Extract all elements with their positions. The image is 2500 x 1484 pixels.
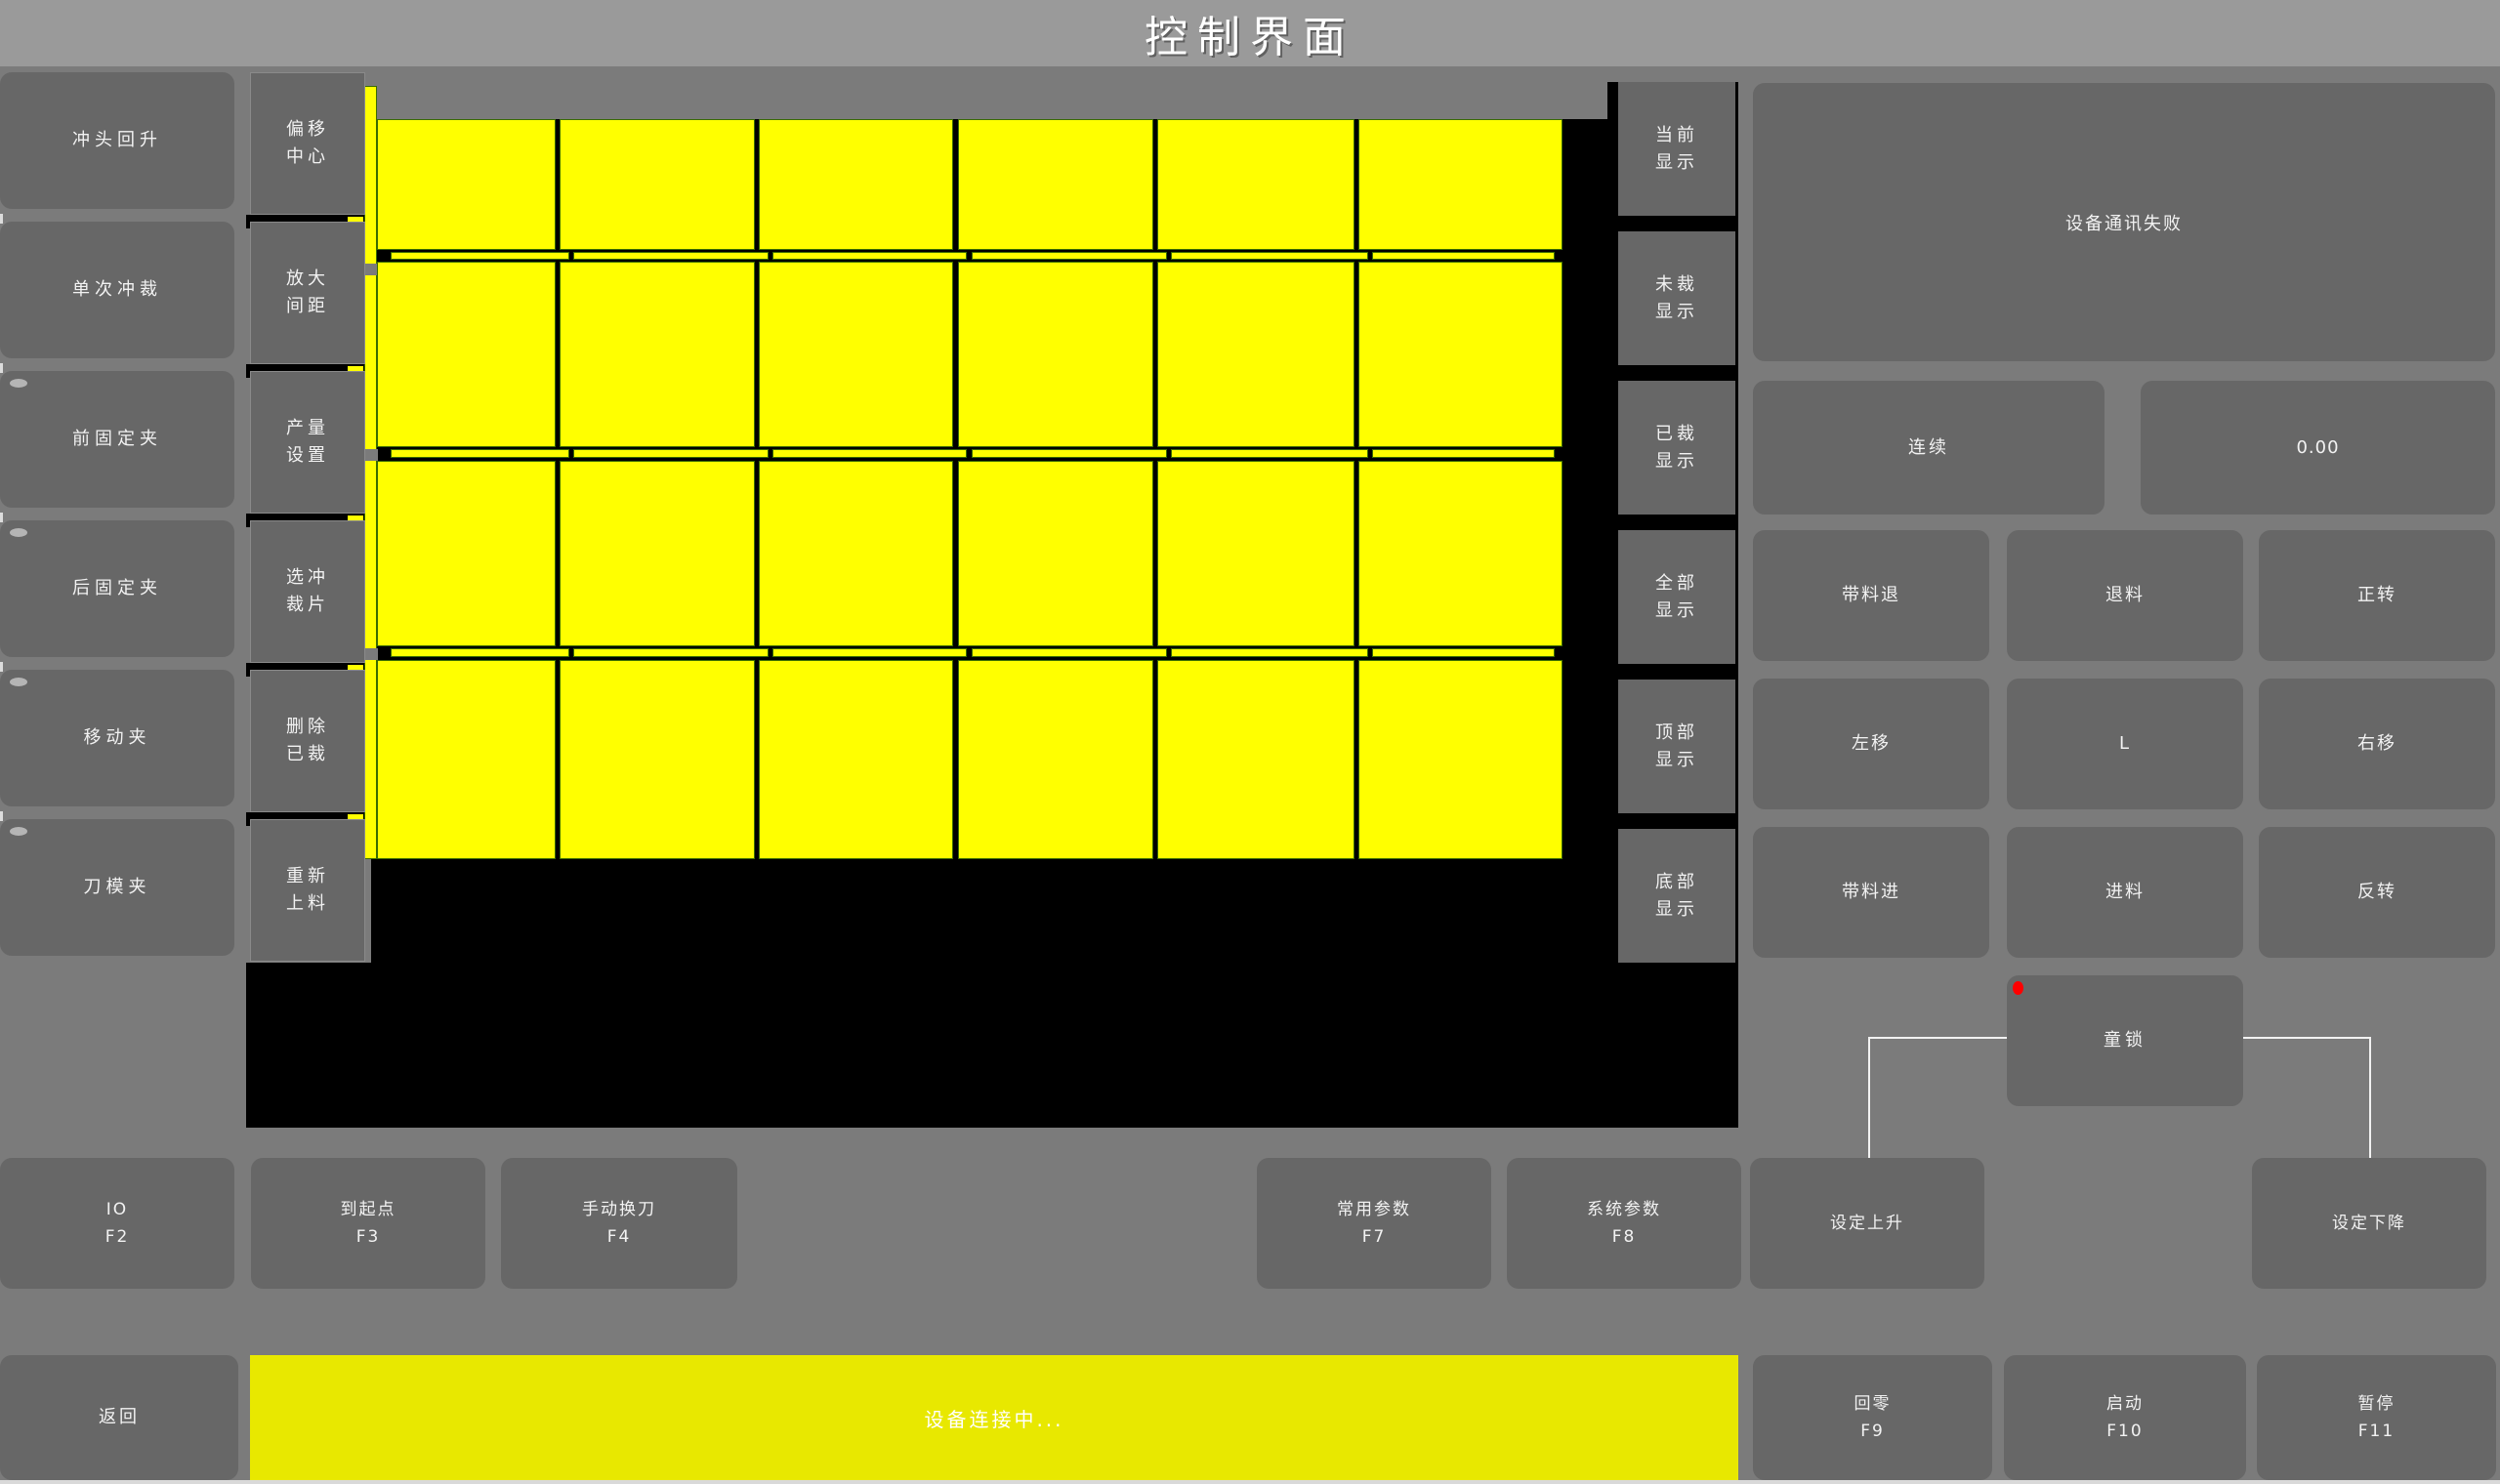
title-bar: 控制界面 <box>0 0 2500 66</box>
cut-piece[interactable] <box>560 461 755 646</box>
cut-piece[interactable] <box>560 119 755 250</box>
cut-strip-piece[interactable] <box>573 648 769 657</box>
button-show-current[interactable]: 当前 显示 <box>1618 82 1735 216</box>
button-die-clamp[interactable]: 刀模夹 <box>0 819 234 956</box>
cut-strip-piece[interactable] <box>772 252 967 260</box>
button-feed-in-with-material[interactable]: 带料进 <box>1753 827 1989 958</box>
cut-piece[interactable] <box>958 119 1153 250</box>
cut-piece[interactable] <box>759 262 953 447</box>
button-material-back[interactable]: 退料 <box>2007 530 2243 661</box>
cut-piece[interactable] <box>759 119 953 250</box>
cut-piece[interactable] <box>377 660 556 859</box>
cut-piece[interactable] <box>759 461 953 646</box>
button-show-all[interactable]: 全部 显示 <box>1618 530 1735 664</box>
button-home-f9[interactable]: 回零 F9 <box>1753 1355 1992 1480</box>
cut-strip-piece[interactable] <box>972 648 1167 657</box>
left-edge-tick <box>0 513 3 522</box>
button-output-settings[interactable]: 产量 设置 <box>250 371 365 514</box>
cut-piece[interactable] <box>1157 119 1354 250</box>
cut-strip-piece[interactable] <box>573 252 769 260</box>
cut-piece[interactable] <box>958 660 1153 859</box>
cut-strip-piece[interactable] <box>972 449 1167 458</box>
button-set-fall[interactable]: 设定下降 <box>2252 1158 2486 1289</box>
button-show-bottom[interactable]: 底部 显示 <box>1618 829 1735 963</box>
button-system-params-f8[interactable]: 系统参数 F8 <box>1507 1158 1741 1289</box>
clamp-indicator-light <box>10 678 27 686</box>
device-status-panel: 设备通讯失败 <box>1753 83 2495 361</box>
connection-status-bar: 设备连接中... <box>250 1355 1738 1480</box>
cut-piece[interactable] <box>377 262 556 447</box>
back-button[interactable]: 返回 <box>0 1355 238 1480</box>
cut-piece[interactable] <box>377 461 556 646</box>
button-l[interactable]: L <box>2007 679 2243 809</box>
lock-indicator-light <box>2013 981 2023 995</box>
button-select-pieces[interactable]: 选冲 裁片 <box>250 520 365 663</box>
left-edge-tick <box>0 363 3 373</box>
button-move-right[interactable]: 右移 <box>2259 679 2495 809</box>
clamp-indicator-light <box>10 827 27 836</box>
continuous-mode-button[interactable]: 连续 <box>1753 381 2104 515</box>
button-rotate-forward[interactable]: 正转 <box>2259 530 2495 661</box>
cut-piece[interactable] <box>1358 119 1562 250</box>
button-moving-clamp[interactable]: 移动夹 <box>0 670 234 806</box>
cut-piece[interactable] <box>1358 461 1562 646</box>
button-show-uncut[interactable]: 未裁 显示 <box>1618 231 1735 365</box>
lock-link-line-left <box>1868 1037 1870 1158</box>
button-punch-return[interactable]: 冲头回升 <box>0 72 234 209</box>
cut-piece[interactable] <box>1157 461 1354 646</box>
button-show-top[interactable]: 顶部 显示 <box>1618 680 1735 813</box>
cut-strip-piece[interactable] <box>1372 449 1555 458</box>
cut-strip-piece[interactable] <box>772 449 967 458</box>
cut-strip-piece[interactable] <box>972 252 1167 260</box>
cut-piece[interactable] <box>958 461 1153 646</box>
button-rear-clamp[interactable]: 后固定夹 <box>0 520 234 657</box>
button-rotate-reverse[interactable]: 反转 <box>2259 827 2495 958</box>
device-status-message: 设备通讯失败 <box>2065 210 2183 235</box>
canvas-bottom-left <box>246 963 371 1128</box>
material-edge-gap <box>363 648 378 660</box>
button-manual-tool-change-f4[interactable]: 手动换刀 F4 <box>501 1158 737 1289</box>
bottom-edge-line <box>0 1480 2500 1484</box>
button-reload-material[interactable]: 重新 上料 <box>250 819 365 962</box>
cut-strip-piece[interactable] <box>1372 648 1555 657</box>
button-show-cut[interactable]: 已裁 显示 <box>1618 381 1735 515</box>
button-start-f10[interactable]: 启动 F10 <box>2004 1355 2246 1480</box>
button-feed-back-with-material[interactable]: 带料退 <box>1753 530 1989 661</box>
cut-strip-piece[interactable] <box>391 648 569 657</box>
left-edge-tick <box>0 214 3 224</box>
cut-piece[interactable] <box>560 262 755 447</box>
cut-strip-piece[interactable] <box>1171 449 1368 458</box>
button-delete-cut[interactable]: 删除 已裁 <box>250 670 365 812</box>
button-pause-f11[interactable]: 暂停 F11 <box>2257 1355 2496 1480</box>
left-edge-tick <box>0 811 3 821</box>
cut-piece[interactable] <box>560 660 755 859</box>
button-enlarge-spacing[interactable]: 放大 间距 <box>250 222 365 364</box>
child-lock-label: 童锁 <box>2104 1027 2146 1054</box>
button-io-f2[interactable]: IO F2 <box>0 1158 234 1289</box>
cut-strip-piece[interactable] <box>1372 252 1555 260</box>
cut-strip-piece[interactable] <box>573 449 769 458</box>
button-front-clamp[interactable]: 前固定夹 <box>0 371 234 508</box>
button-common-params-f7[interactable]: 常用参数 F7 <box>1257 1158 1491 1289</box>
material-edge-gap <box>363 264 378 275</box>
button-to-origin-f3[interactable]: 到起点 F3 <box>251 1158 485 1289</box>
lock-link-line-right <box>2369 1037 2371 1158</box>
cut-piece[interactable] <box>759 660 953 859</box>
page-title: 控制界面 <box>1145 2 1355 64</box>
connection-status-text: 设备连接中... <box>924 1404 1063 1432</box>
cut-strip-piece[interactable] <box>391 449 569 458</box>
button-offset-center[interactable]: 偏移 中心 <box>250 72 365 215</box>
cut-strip-piece[interactable] <box>391 252 569 260</box>
button-move-left[interactable]: 左移 <box>1753 679 1989 809</box>
material-edge-gap <box>363 449 378 461</box>
cut-piece[interactable] <box>1157 262 1354 447</box>
button-single-punch[interactable]: 单次冲裁 <box>0 222 234 358</box>
cut-strip-piece[interactable] <box>1171 252 1368 260</box>
clamp-indicator-light <box>10 528 27 537</box>
material-edge-strip <box>364 86 377 859</box>
value-display: 0.00 <box>2141 381 2495 515</box>
left-edge-tick <box>0 662 3 672</box>
cut-piece[interactable] <box>1358 262 1562 447</box>
cut-strip-piece[interactable] <box>1171 648 1368 657</box>
button-set-rise[interactable]: 设定上升 <box>1750 1158 1984 1289</box>
button-material-feed[interactable]: 进料 <box>2007 827 2243 958</box>
child-lock-button[interactable]: 童锁 <box>2007 975 2243 1106</box>
cut-piece[interactable] <box>958 262 1153 447</box>
cut-piece[interactable] <box>1157 660 1354 859</box>
cut-strip-piece[interactable] <box>772 648 967 657</box>
cut-piece[interactable] <box>377 119 556 250</box>
clamp-indicator-light <box>10 379 27 388</box>
cut-piece[interactable] <box>1358 660 1562 859</box>
